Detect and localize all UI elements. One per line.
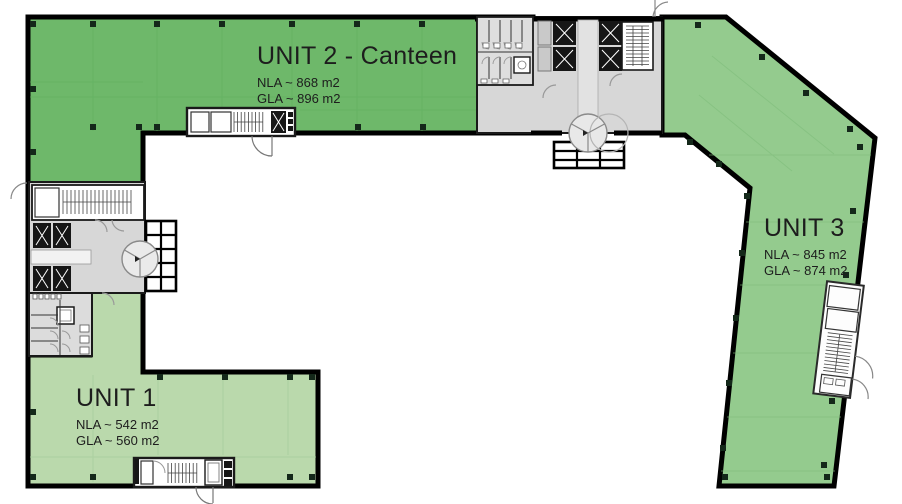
west-core-corridor (31, 250, 91, 264)
unit-2-gla: GLA ~ 896 m2 (257, 91, 457, 107)
mid-exterior-door-arc (653, 0, 668, 17)
west-toilets (29, 293, 92, 356)
unit1-stair-block (134, 458, 234, 504)
north-stair-block (187, 108, 295, 156)
unit-2-nla: NLA ~ 868 m2 (257, 75, 457, 91)
floor-plan: UNIT 2 - Canteen NLA ~ 868 m2 GLA ~ 896 … (0, 0, 902, 504)
unit-3-label: UNIT 3 NLA ~ 845 m2 GLA ~ 874 m2 (764, 214, 847, 279)
mid-core (475, 0, 668, 168)
west-wc-fixtures-right (80, 325, 89, 354)
unit1-stair-marks (224, 461, 232, 486)
north-stair-marks (288, 112, 293, 131)
mid-stairwell (622, 22, 653, 70)
west-wc-sinks (33, 294, 61, 299)
unit-3-gla: GLA ~ 874 m2 (764, 263, 847, 279)
unit-3-title: UNIT 3 (764, 214, 847, 243)
unit-2-label: UNIT 2 - Canteen NLA ~ 868 m2 GLA ~ 896 … (257, 42, 457, 107)
mid-toilets (477, 17, 533, 85)
unit-1-nla: NLA ~ 542 m2 (76, 417, 159, 433)
unit-1-title: UNIT 1 (76, 384, 159, 413)
north-stair-door-arc (252, 136, 272, 156)
unit-1-gla: GLA ~ 560 m2 (76, 433, 159, 449)
west-exterior-door-arc (11, 183, 27, 199)
unit-1-label: UNIT 1 NLA ~ 542 m2 GLA ~ 560 m2 (76, 384, 159, 449)
west-revolving-door (122, 241, 158, 277)
unit-2-title: UNIT 2 - Canteen (257, 42, 457, 71)
unit-3-nla: NLA ~ 845 m2 (764, 247, 847, 263)
unit1-stair-door-arc (196, 487, 213, 504)
